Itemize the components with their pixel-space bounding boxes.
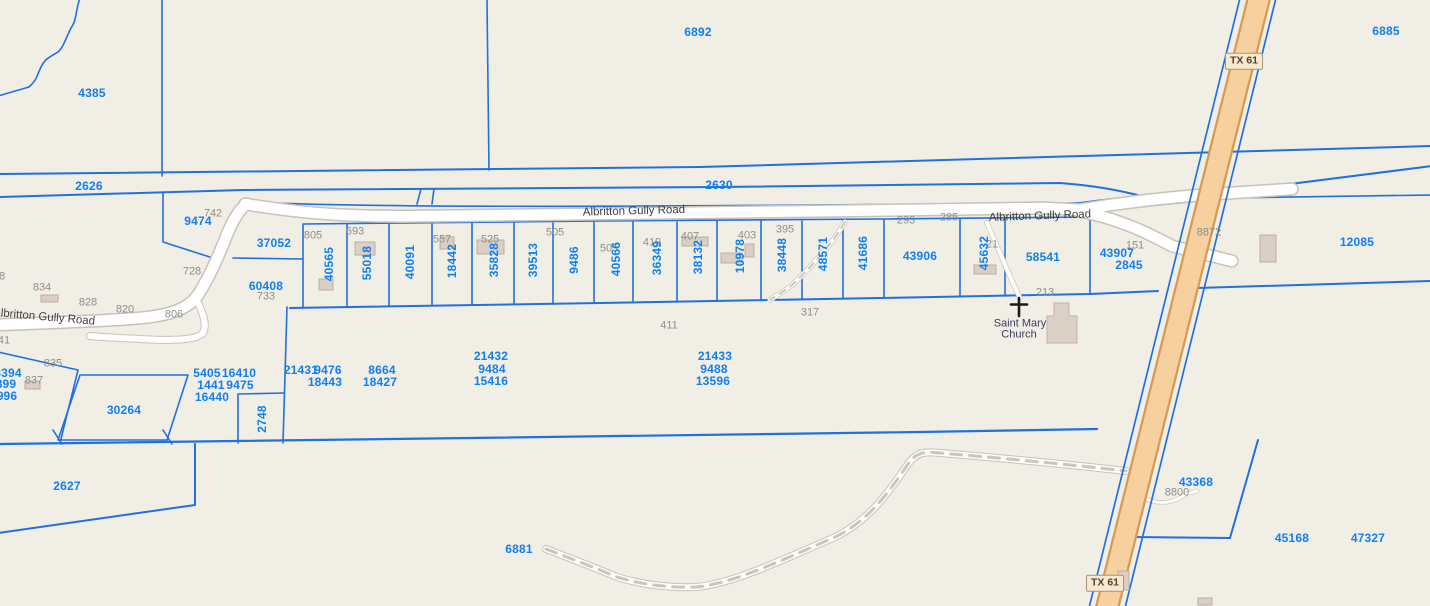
address-label-693: 693 [346,227,364,238]
address-label-505: 505 [546,228,564,239]
parcel-label-58541[interactable]: 58541 [1026,251,1060,263]
parcel-label-2748[interactable]: 2748 [256,405,268,433]
address-label-213: 213 [1036,288,1054,299]
road-label-albritton-gully-road: Albritton Gully Road [0,308,95,328]
parcel-map-canvas[interactable]: 7427288348288208068418358377338056935575… [0,0,1430,606]
address-label-8872: 8872 [1197,228,1221,239]
address-label-828: 828 [79,298,97,309]
address-label-806: 806 [165,310,183,321]
parcel-label-21433[interactable]: 21433 [698,350,732,362]
parcel-label-30264[interactable]: 30264 [107,404,141,416]
address-label-285: 285 [940,213,958,224]
parcel-label-2630[interactable]: 2630 [705,179,733,191]
address-label-411: 411 [660,321,678,332]
parcel-label-2845[interactable]: 2845 [1115,259,1143,271]
parcel-label-39513[interactable]: 39513 [527,243,539,277]
address-label-8800: 8800 [1165,488,1189,499]
address-label-8: 8 [0,272,5,283]
address-label-834: 834 [33,283,51,294]
parcel-label-13596[interactable]: 13596 [696,375,730,387]
parcel-label-996[interactable]: 996 [0,390,17,402]
parcel-label-18427[interactable]: 18427 [363,376,397,388]
parcel-label-2626[interactable]: 2626 [75,180,103,192]
parcel-label-43906[interactable]: 43906 [903,250,937,262]
address-label-317: 317 [801,308,819,319]
parcel-label-4385[interactable]: 4385 [78,87,106,99]
parcel-label-37052[interactable]: 37052 [257,237,291,249]
parcel-label-2627[interactable]: 2627 [53,480,81,492]
parcel-label-16440[interactable]: 16440 [195,391,229,403]
road-label-albritton-gully-road: Albritton Gully Road [989,209,1092,224]
parcel-label-18442[interactable]: 18442 [446,244,458,278]
parcel-label-9474[interactable]: 9474 [184,215,212,227]
parcel-label-40091[interactable]: 40091 [404,245,416,279]
address-label-837: 837 [25,376,43,387]
parcel-label-6881[interactable]: 6881 [505,543,533,555]
parcel-label-43368[interactable]: 43368 [1179,476,1213,488]
parcel-label-45168[interactable]: 45168 [1275,532,1309,544]
parcel-label-47327[interactable]: 47327 [1351,532,1385,544]
road-label-albritton-gully-road: Albritton Gully Road [583,205,686,219]
parcel-label-12085[interactable]: 12085 [1340,236,1374,248]
parcel-label-41686[interactable]: 41686 [857,236,869,270]
church-label-line2: Church [1001,330,1036,341]
parcel-label-6892[interactable]: 6892 [684,26,712,38]
address-label-805: 805 [304,231,322,242]
parcel-label-18443[interactable]: 18443 [308,376,342,388]
address-label-835: 835 [44,359,62,370]
parcel-label-38448[interactable]: 38448 [776,238,788,272]
address-label-395: 395 [776,225,794,236]
parcel-label-9475[interactable]: 9475 [226,379,254,391]
labels-layer: 7427288348288208068418358377338056935575… [0,0,1430,606]
parcel-label-6885[interactable]: 6885 [1372,25,1400,37]
parcel-label-15416[interactable]: 15416 [474,375,508,387]
address-label-733: 733 [257,292,275,303]
address-label-728: 728 [183,267,201,278]
route-shield-tx61: TX 61 [1086,575,1124,592]
parcel-label-35828[interactable]: 35828 [488,243,500,277]
parcel-label-55018[interactable]: 55018 [361,246,373,280]
parcel-label-36349[interactable]: 36349 [651,241,663,275]
address-label-820: 820 [116,305,134,316]
parcel-label-45632[interactable]: 45632 [978,236,990,270]
parcel-label-21432[interactable]: 21432 [474,350,508,362]
parcel-label-48571[interactable]: 48571 [817,237,829,271]
parcel-label-38132[interactable]: 38132 [692,240,704,274]
address-label-293: 293 [897,216,915,227]
parcel-label-40565[interactable]: 40565 [323,247,335,281]
route-shield-tx61: TX 61 [1225,53,1263,70]
parcel-label-9486[interactable]: 9486 [568,246,580,274]
address-label-41: 41 [0,336,10,347]
parcel-label-40566[interactable]: 40566 [610,242,622,276]
parcel-label-10978[interactable]: 10978 [734,239,746,273]
parcel-label-60408[interactable]: 60408 [249,280,283,292]
